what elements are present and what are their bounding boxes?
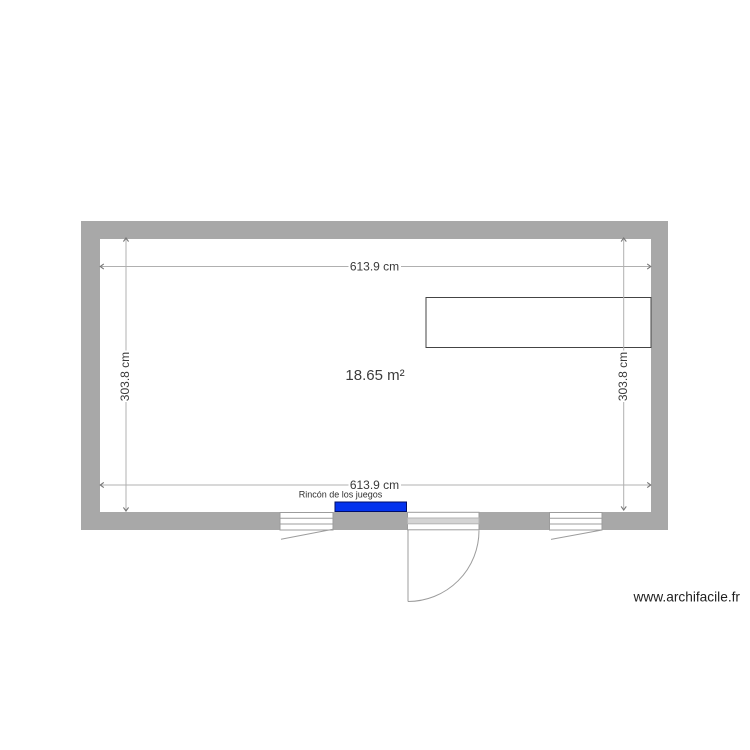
svg-text:303.8 cm: 303.8 cm — [616, 352, 630, 401]
svg-text:Rincón de los juegos: Rincón de los juegos — [299, 490, 383, 500]
svg-text:613.9 cm: 613.9 cm — [350, 260, 399, 274]
svg-text:18.65 m²: 18.65 m² — [345, 367, 404, 384]
svg-text:303.8 cm: 303.8 cm — [118, 352, 132, 401]
svg-text:www.archifacile.fr: www.archifacile.fr — [633, 590, 741, 605]
